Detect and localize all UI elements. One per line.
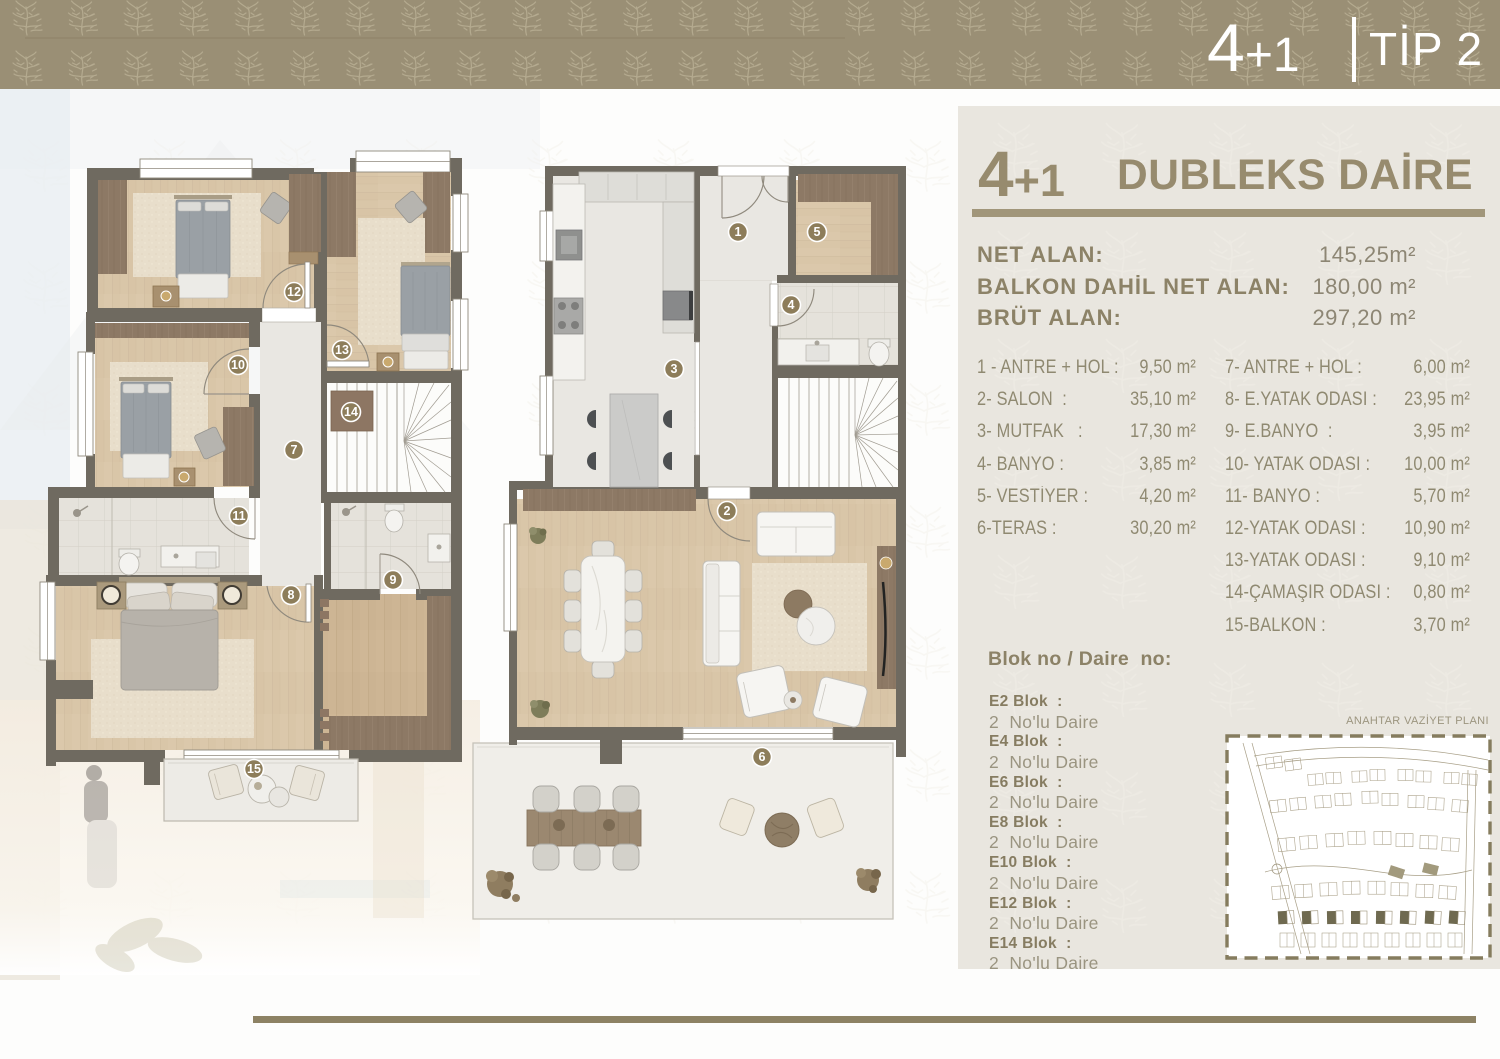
svg-text:12: 12 — [287, 285, 301, 299]
svg-text:11: 11 — [232, 509, 245, 523]
svg-text:13: 13 — [335, 343, 349, 357]
svg-text:7: 7 — [291, 443, 298, 457]
svg-text:9: 9 — [390, 573, 397, 587]
svg-text:8: 8 — [288, 588, 295, 602]
svg-text:14: 14 — [344, 405, 358, 419]
svg-text:5: 5 — [814, 225, 821, 239]
svg-text:3: 3 — [671, 362, 678, 376]
svg-text:10: 10 — [231, 358, 245, 372]
svg-text:2: 2 — [724, 504, 731, 518]
svg-text:6: 6 — [759, 750, 766, 764]
svg-text:4: 4 — [788, 298, 795, 312]
svg-text:1: 1 — [735, 225, 742, 239]
svg-text:15: 15 — [247, 762, 261, 776]
